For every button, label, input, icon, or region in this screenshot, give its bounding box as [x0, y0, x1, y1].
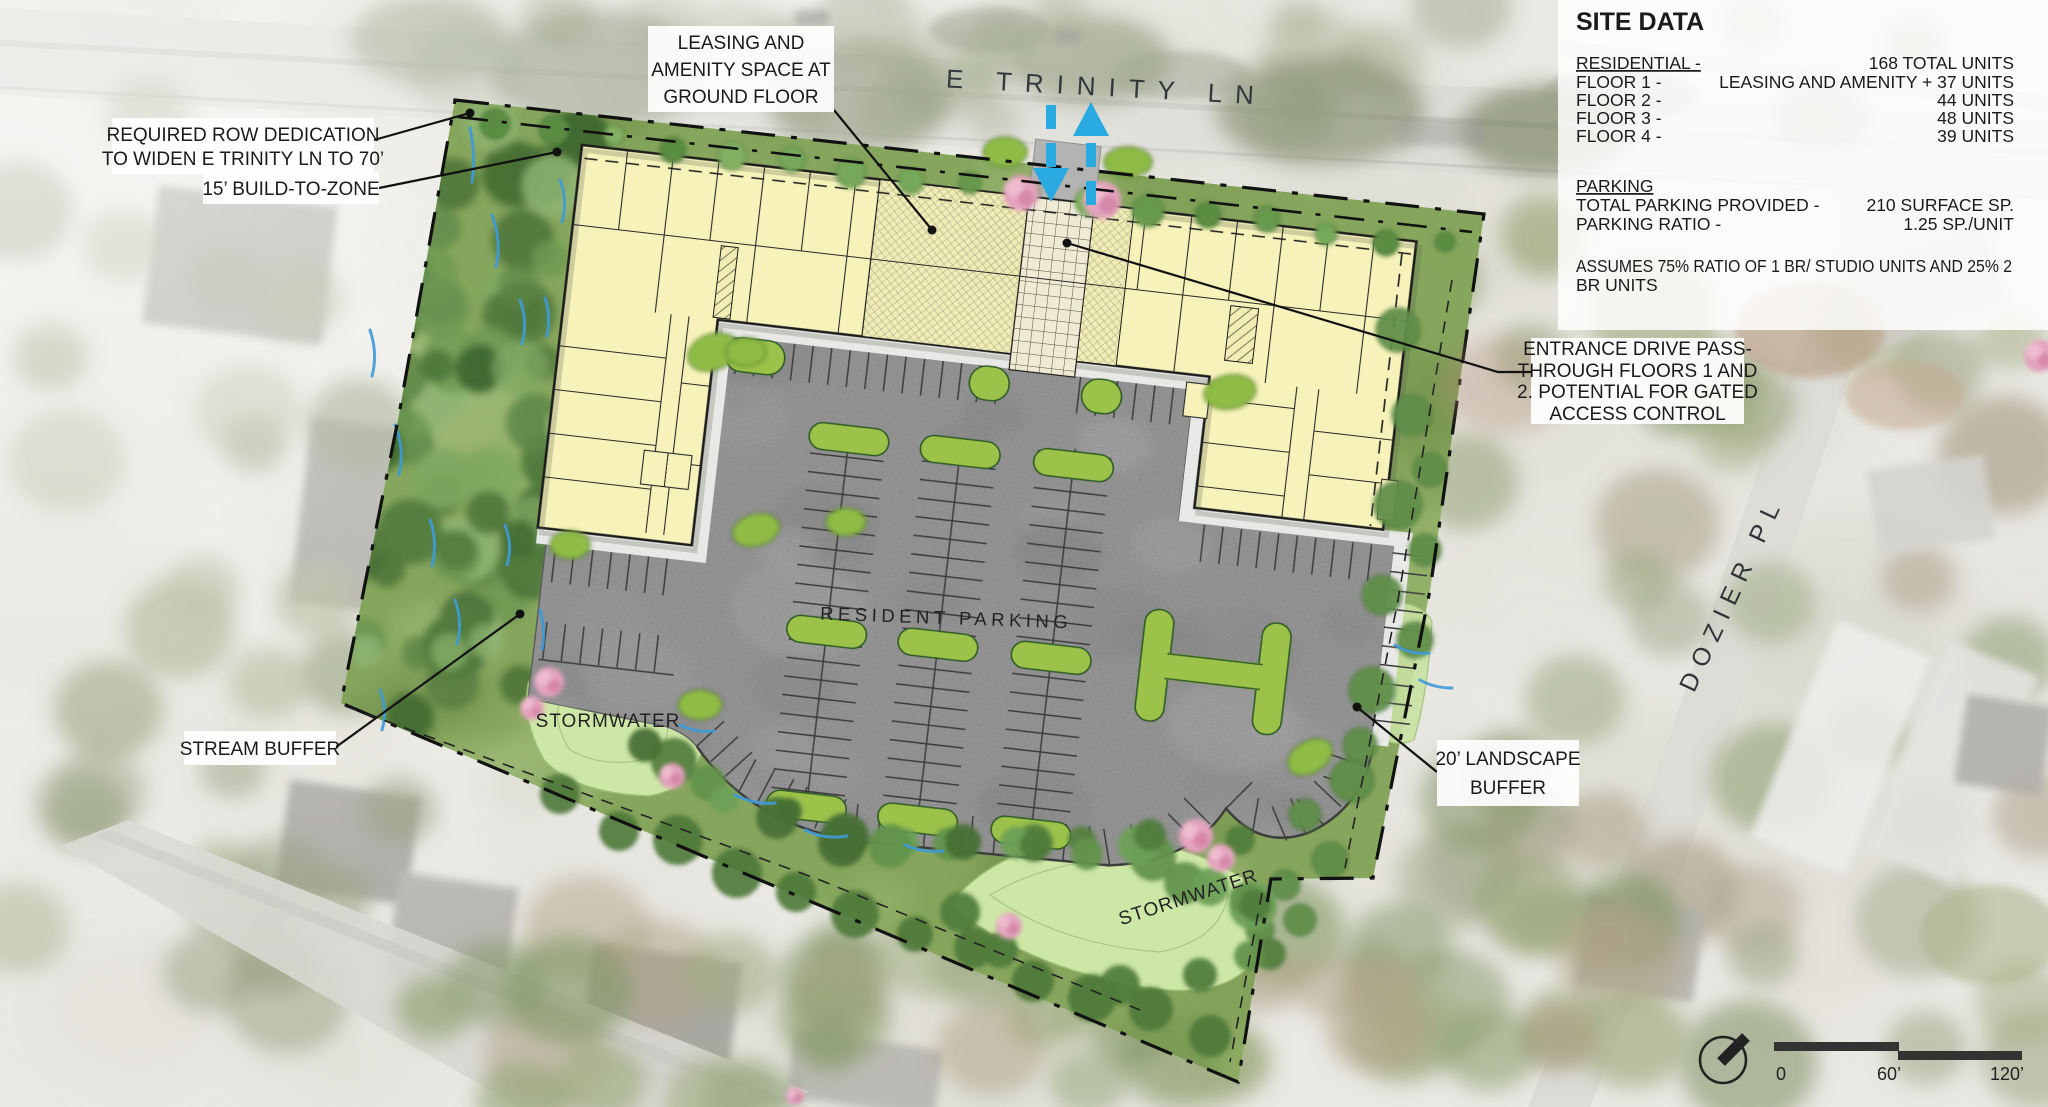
- svg-text:ASSUMES 75% RATIO OF 1 BR/ STU: ASSUMES 75% RATIO OF 1 BR/ STUDIO UNITS …: [1576, 256, 2012, 276]
- svg-text:0: 0: [1776, 1064, 1786, 1084]
- svg-text:ENTRANCE DRIVE PASS-: ENTRANCE DRIVE PASS-: [1523, 339, 1752, 360]
- svg-text:168 TOTAL UNITS: 168 TOTAL UNITS: [1869, 53, 2014, 73]
- svg-text:FLOOR 1 -: FLOOR 1 -: [1576, 72, 1662, 92]
- svg-text:PARKING RATIO -: PARKING RATIO -: [1576, 214, 1721, 234]
- svg-text:AMENITY SPACE AT: AMENITY SPACE AT: [651, 60, 831, 81]
- svg-text:15’ BUILD-TO-ZONE: 15’ BUILD-TO-ZONE: [202, 179, 379, 200]
- svg-text:ACCESS CONTROL: ACCESS CONTROL: [1549, 404, 1725, 425]
- svg-text:BUFFER: BUFFER: [1470, 778, 1546, 799]
- svg-text:1.25 SP./UNIT: 1.25 SP./UNIT: [1903, 214, 2014, 234]
- svg-text:60’: 60’: [1877, 1064, 1901, 1084]
- svg-text:39 UNITS: 39 UNITS: [1937, 126, 2014, 146]
- svg-text:STORMWATER: STORMWATER: [536, 711, 681, 732]
- svg-text:GROUND FLOOR: GROUND FLOOR: [663, 87, 818, 108]
- svg-text:RESIDENTIAL -: RESIDENTIAL -: [1576, 53, 1701, 73]
- svg-text:210 SURFACE SP.: 210 SURFACE SP.: [1866, 195, 2014, 215]
- svg-text:THROUGH FLOORS 1 AND: THROUGH FLOORS 1 AND: [1518, 361, 1758, 382]
- svg-text:TOTAL PARKING PROVIDED -: TOTAL PARKING PROVIDED -: [1576, 195, 1820, 215]
- svg-text:LEASING AND: LEASING AND: [678, 33, 805, 54]
- svg-text:20’ LANDSCAPE: 20’ LANDSCAPE: [1435, 749, 1580, 770]
- svg-text:PARKING: PARKING: [1576, 176, 1653, 196]
- svg-text:120’: 120’: [1990, 1064, 2024, 1084]
- svg-text:TO WIDEN E TRINITY LN TO 70’: TO WIDEN E TRINITY LN TO 70’: [102, 149, 384, 170]
- svg-text:FLOOR 2 -: FLOOR 2 -: [1576, 90, 1662, 110]
- svg-text:48 UNITS: 48 UNITS: [1937, 108, 2014, 128]
- svg-text:SITE DATA: SITE DATA: [1576, 8, 1704, 36]
- svg-text:2. POTENTIAL FOR GATED: 2. POTENTIAL FOR GATED: [1517, 382, 1758, 403]
- svg-text:LEASING AND AMENITY + 37 UNITS: LEASING AND AMENITY + 37 UNITS: [1719, 72, 2014, 92]
- svg-text:44 UNITS: 44 UNITS: [1937, 90, 2014, 110]
- svg-text:REQUIRED ROW DEDICATION: REQUIRED ROW DEDICATION: [106, 125, 379, 146]
- svg-text:FLOOR 3 -: FLOOR 3 -: [1576, 108, 1662, 128]
- svg-text:BR UNITS: BR UNITS: [1576, 275, 1658, 295]
- svg-text:STREAM BUFFER: STREAM BUFFER: [180, 739, 340, 760]
- svg-text:FLOOR 4 -: FLOOR 4 -: [1576, 126, 1662, 146]
